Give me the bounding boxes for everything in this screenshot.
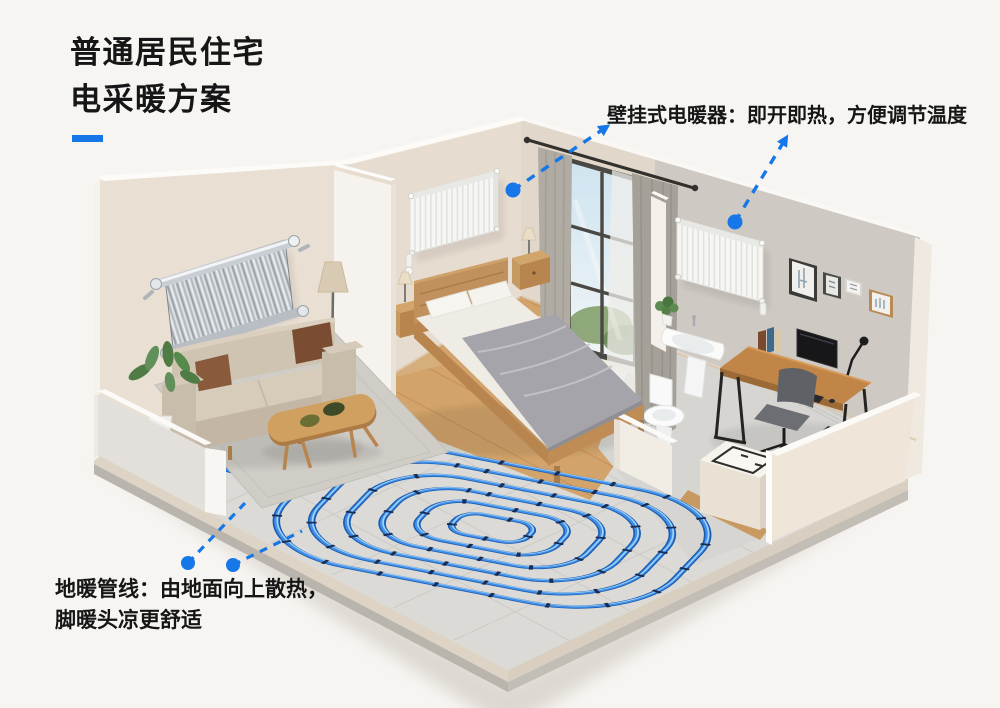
- floor-heating-line2: 脚暖头凉更舒适: [55, 605, 328, 636]
- title-line1: 普通居民住宅: [70, 30, 265, 77]
- page-title: 普通居民住宅 电采暖方案: [70, 30, 265, 124]
- annotation-wall-heater: 壁挂式电暖器：即开即热，方便调节温度: [607, 99, 967, 128]
- arrow-dot: [181, 556, 195, 570]
- title-line2: 电采暖方案: [70, 77, 265, 124]
- floor-heating-line1: 地暖管线：由地面向上散热，: [55, 574, 328, 605]
- annotation-floor-heating: 地暖管线：由地面向上散热， 脚暖头凉更舒适: [55, 574, 328, 636]
- arrow-dot: [728, 215, 743, 230]
- arrow-dot: [226, 558, 240, 572]
- arrow-dot: [506, 183, 521, 198]
- title-underline: [72, 135, 103, 142]
- mouse: [829, 399, 835, 403]
- bathroom-partition: [651, 196, 666, 352]
- infographic-electric-heating: 普通居民住宅 电采暖方案 壁挂式电暖器：即开即热，方便调节温度 地暖管线：由地面…: [0, 0, 1000, 708]
